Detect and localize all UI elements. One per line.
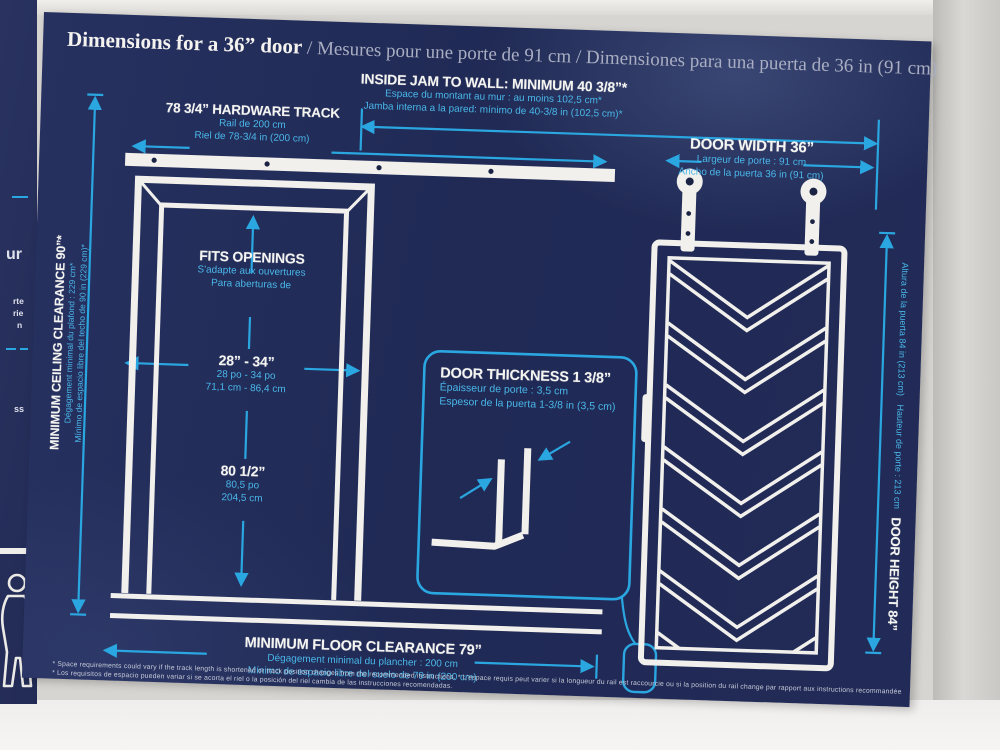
inside-jam-label: INSIDE JAM TO WALL: MINIMUM 40 3/8”* Esp… (360, 71, 628, 122)
table-surface (0, 700, 1000, 750)
photo-of-door-packaging: { "colors": { "panel_navy": "#222b57", "… (0, 0, 1000, 750)
inside-jam-left-tick (361, 109, 362, 151)
door-height-es: Altura de la puerta 84 in (213 cm) (894, 262, 910, 396)
thickness-pointer-a (460, 478, 491, 499)
opening-width-label: 28” - 34” 28 po - 34 po 71,1 cm - 86,4 c… (205, 352, 286, 397)
opening-height-head: 80 1/2” (220, 462, 265, 479)
track-arrow-right (331, 153, 605, 162)
line-art (108, 150, 847, 693)
door-width-label: DOOR WIDTH 36” Largeur de porte : 91 cm … (678, 135, 824, 183)
cross-section-face-a (499, 459, 502, 544)
side-dash (12, 196, 28, 198)
main-panel: Dimensions for a 36” door / Mesures pour… (22, 12, 932, 707)
side-text-fragment: rie (13, 308, 23, 318)
side-text-fragment: ss (14, 404, 24, 414)
floor-arrow-left (105, 650, 207, 653)
shared-right-tick (876, 120, 879, 210)
floor-arrow-right (475, 663, 593, 667)
thickness-leader-line (620, 597, 637, 643)
side-text-fragment: rte (13, 296, 24, 306)
opening-arrow-down (241, 521, 243, 585)
side-text-fragment: ur (6, 246, 22, 264)
thickness-pointer-b (539, 441, 570, 461)
opening-line-b (245, 411, 247, 459)
cross-section-face-b (525, 448, 528, 534)
ceiling-clearance-label: MINIMUM CEILING CLEARANCE 90”* Dégagemen… (47, 235, 90, 451)
cross-section-base (432, 532, 523, 547)
hardware-track-bar (125, 153, 615, 182)
floor-lines (110, 596, 602, 632)
chevron-pattern (656, 261, 828, 692)
box-right-side (933, 0, 1000, 750)
box-top-edge (0, 0, 1000, 15)
floor-right-tick (596, 655, 597, 679)
side-text-fragment: n (17, 320, 22, 330)
fits-openings-label: FITS OPENINGS S'adapte aux ouvertures Pa… (197, 247, 306, 293)
door-height-head: DOOR HEIGHT 84” (885, 517, 904, 631)
opening-width-arrow-right (304, 369, 358, 371)
opening-height-es: 204,5 cm (220, 491, 265, 505)
side-dash (20, 348, 28, 350)
track-arrow-left (134, 146, 190, 148)
door-handle (641, 394, 652, 442)
door-height-fr: Hauteur de porte : 213 cm (890, 404, 905, 509)
opening-height-label: 80 1/2” 80,5 po 204,5 cm (220, 462, 266, 505)
side-dash (6, 348, 16, 350)
hardware-track-label: 78 3/4” HARDWARE TRACK Rail de 200 cm Ri… (165, 100, 340, 147)
door-thickness-label: DOOR THICKNESS 1 3/8” Épaisseur de porte… (439, 365, 617, 414)
opening-width-es: 71,1 cm - 86,4 cm (205, 381, 285, 397)
opening-line-a (249, 317, 250, 349)
